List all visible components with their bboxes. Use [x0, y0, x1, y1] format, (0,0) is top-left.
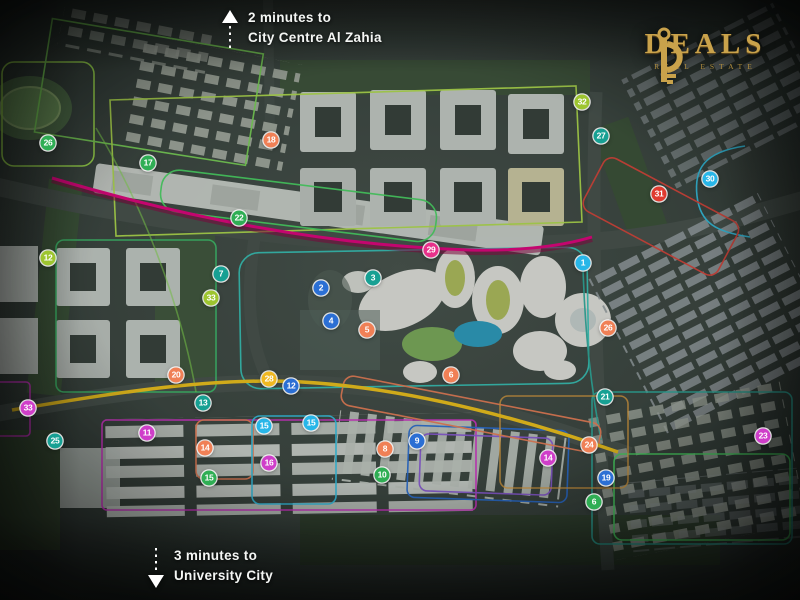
- zone-marker-6: 6: [444, 368, 459, 383]
- zone-marker-32: 32: [575, 95, 590, 110]
- distance-annotation-top: 2 minutes to City Centre Al Zahia: [222, 8, 382, 50]
- distance-annotation-bottom: 3 minutes to University City: [148, 546, 273, 588]
- zone-marker-8: 8: [378, 442, 393, 457]
- arrow-up-icon: [222, 10, 238, 23]
- zone-marker-6: 6: [587, 495, 602, 510]
- distance-bottom-line1: 3 minutes to: [174, 546, 273, 566]
- zone-marker-1: 1: [576, 256, 591, 271]
- zone-marker-14: 14: [541, 451, 556, 466]
- zone-marker-28: 28: [262, 372, 277, 387]
- zone-marker-29: 29: [424, 243, 439, 258]
- zone-marker-7: 7: [214, 267, 229, 282]
- zone-marker-3: 3: [366, 271, 381, 286]
- zone-marker-25: 25: [48, 434, 63, 449]
- zone-marker-22: 22: [232, 211, 247, 226]
- zone-marker-18: 18: [264, 133, 279, 148]
- zone-marker-5: 5: [360, 323, 375, 338]
- zone-marker-24: 24: [582, 438, 597, 453]
- zone-marker-19: 19: [599, 471, 614, 486]
- zone-marker-15: 15: [202, 471, 217, 486]
- zone-marker-2: 2: [314, 281, 329, 296]
- zone-marker-9: 9: [410, 434, 425, 449]
- zone-marker-30: 30: [703, 172, 718, 187]
- distance-top-line1: 2 minutes to: [248, 8, 382, 28]
- zone-marker-12: 12: [41, 251, 56, 266]
- zone-marker-26: 26: [601, 321, 616, 336]
- zone-marker-13: 13: [196, 396, 211, 411]
- zone-marker-15: 15: [304, 416, 319, 431]
- dotted-route-line-top: [229, 26, 232, 50]
- zone-marker-33: 33: [204, 291, 219, 306]
- zone-marker-31: 31: [652, 187, 667, 202]
- zone-marker-10: 10: [375, 468, 390, 483]
- dotted-route-line-bottom: [155, 548, 158, 572]
- zone-marker-15: 15: [257, 419, 272, 434]
- key-d-logo-icon: [638, 26, 690, 88]
- zone-marker-27: 27: [594, 129, 609, 144]
- zone-marker-17: 17: [141, 156, 156, 171]
- zone-marker-4: 4: [324, 314, 339, 329]
- zone-marker-23: 23: [756, 429, 771, 444]
- arrow-down-icon: [148, 575, 164, 588]
- zone-marker-12: 12: [284, 379, 299, 394]
- distance-top-line2: City Centre Al Zahia: [248, 28, 382, 48]
- masterplan-aerial-map: 2617182212733234529613227303126212812201…: [0, 0, 800, 600]
- distance-bottom-line2: University City: [174, 566, 273, 586]
- zone-marker-21: 21: [598, 390, 613, 405]
- zone-marker-16: 16: [262, 456, 277, 471]
- zone-marker-11: 11: [140, 426, 155, 441]
- zone-marker-26: 26: [41, 136, 56, 151]
- zone-marker-14: 14: [198, 441, 213, 456]
- zone-marker-20: 20: [169, 368, 184, 383]
- zone-markers-layer: 2617182212733234529613227303126212812201…: [0, 0, 800, 600]
- deals-logo: DEALS REAL ESTATE: [638, 26, 768, 71]
- zone-marker-33: 33: [21, 401, 36, 416]
